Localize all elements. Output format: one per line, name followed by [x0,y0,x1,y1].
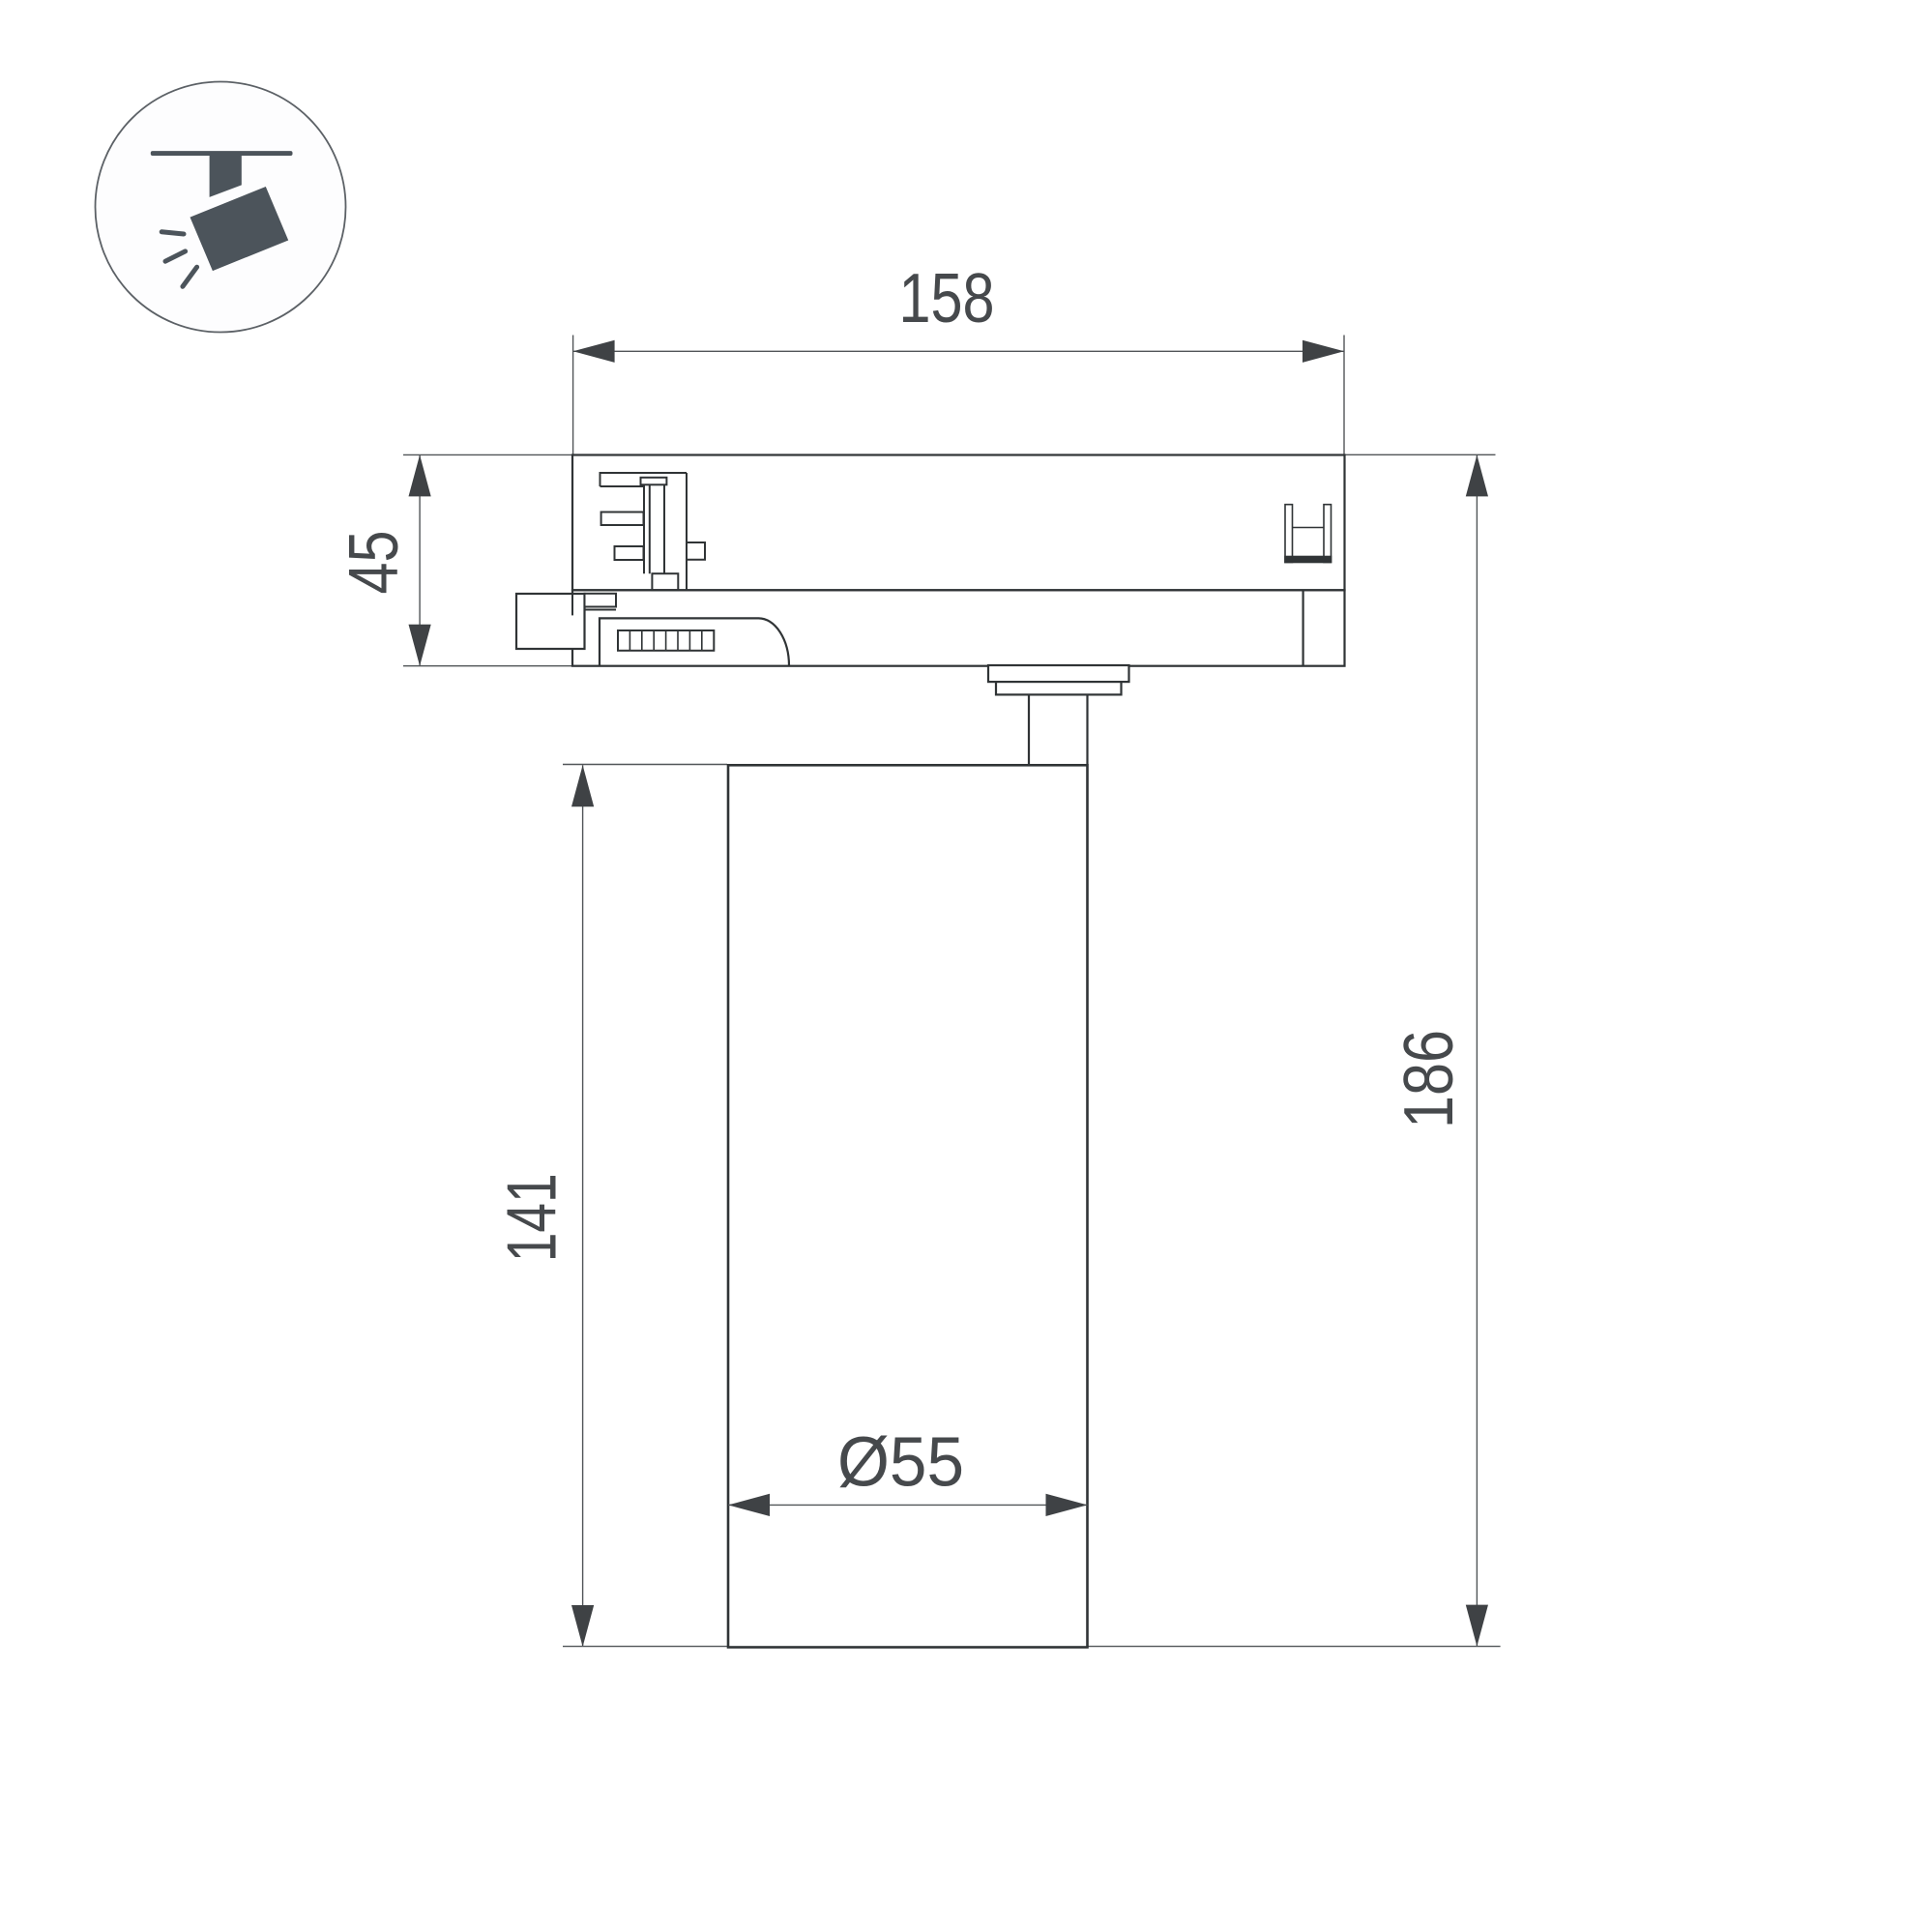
svg-text:141: 141 [493,1173,571,1262]
svg-text:158: 158 [899,259,995,337]
svg-text:186: 186 [1390,1030,1468,1128]
svg-text:Ø55: Ø55 [837,1422,964,1501]
svg-text:45: 45 [335,531,413,595]
